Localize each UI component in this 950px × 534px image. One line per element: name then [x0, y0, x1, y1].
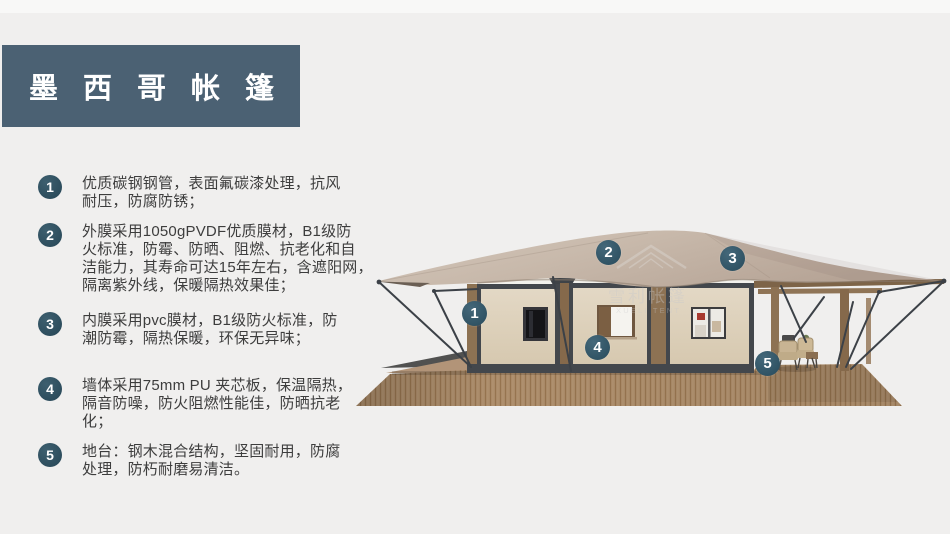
- callout-badge-4: 4: [585, 335, 610, 360]
- wall-bottom-frame: [467, 364, 754, 373]
- callout-badge-5: 5: [755, 351, 780, 376]
- guy-cable: [794, 297, 824, 338]
- wall-module-left: [477, 284, 560, 372]
- callout-badge-3: 3: [720, 246, 745, 271]
- guy-cable: [379, 282, 471, 367]
- guy-cable: [781, 286, 806, 342]
- watermark-text-cn: 雪利帐篷: [608, 287, 688, 306]
- tent-illustration: 雪利帐篷 XUELI TENT: [0, 0, 950, 534]
- porch-post: [840, 289, 849, 371]
- callout-badge-1: 1: [462, 301, 487, 326]
- guy-cable: [846, 292, 879, 367]
- wall-post: [467, 284, 477, 372]
- callout-badge-2: 2: [596, 240, 621, 265]
- watermark-text-en: XUELI TENT: [616, 306, 681, 315]
- roof-canopy: 雪利帐篷 XUELI TENT: [377, 230, 944, 315]
